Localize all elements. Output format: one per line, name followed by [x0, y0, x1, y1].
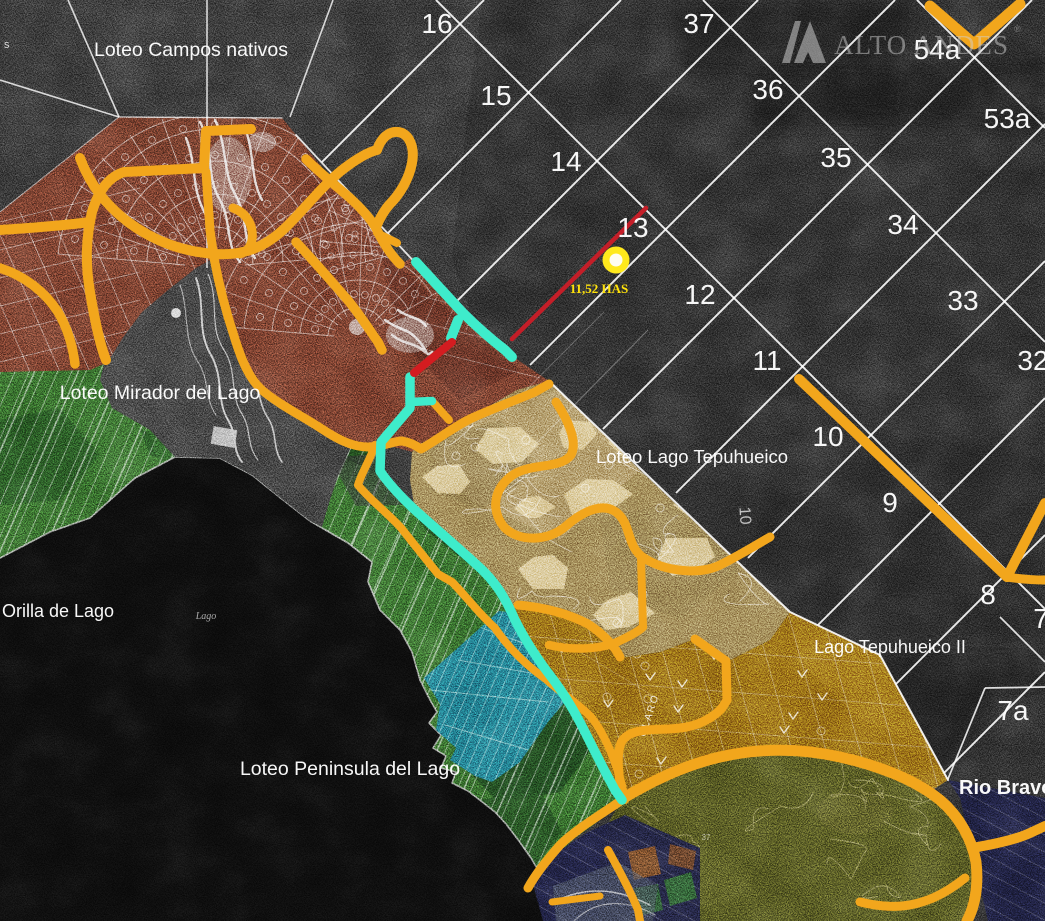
svg-text:®: ® — [1014, 24, 1021, 34]
svg-text:10: 10 — [812, 421, 843, 452]
svg-text:37: 37 — [683, 8, 714, 39]
svg-text:8: 8 — [980, 579, 996, 610]
svg-text:36: 36 — [752, 74, 783, 105]
svg-text:Lago: Lago — [195, 611, 217, 622]
svg-text:15: 15 — [480, 80, 511, 111]
svg-text:11: 11 — [752, 345, 781, 376]
svg-text:11,52 HAS: 11,52 HAS — [570, 281, 629, 296]
svg-text:10: 10 — [735, 506, 753, 525]
svg-text:9: 9 — [882, 487, 898, 518]
svg-text:Loteo Campos nativos: Loteo Campos nativos — [94, 39, 288, 61]
svg-text:7a: 7a — [997, 695, 1029, 726]
svg-text:Loteo Mirador del Lago: Loteo Mirador del Lago — [60, 382, 261, 404]
svg-text:32: 32 — [1017, 345, 1045, 376]
svg-text:Loteo Peninsula del Lago: Loteo Peninsula del Lago — [240, 758, 460, 780]
svg-text:s: s — [4, 39, 10, 51]
svg-text:Loteo Lago Tepuhueico: Loteo Lago Tepuhueico — [596, 446, 788, 467]
svg-text:ALTO ANDES: ALTO ANDES — [834, 30, 1011, 60]
svg-text:Orilla de Lago: Orilla de Lago — [2, 601, 114, 621]
svg-text:35: 35 — [820, 142, 851, 173]
svg-text:7: 7 — [1033, 603, 1045, 634]
svg-text:14: 14 — [550, 146, 581, 177]
svg-text:13: 13 — [617, 212, 648, 243]
svg-text:34: 34 — [887, 209, 918, 240]
svg-text:33: 33 — [947, 285, 978, 316]
svg-text:12: 12 — [684, 279, 715, 310]
svg-text:Lago Tepuhueico II: Lago Tepuhueico II — [814, 637, 966, 657]
svg-text:53a: 53a — [984, 103, 1031, 134]
svg-text:16: 16 — [421, 8, 452, 39]
svg-text:Rio Bravo: Rio Bravo — [959, 777, 1045, 799]
